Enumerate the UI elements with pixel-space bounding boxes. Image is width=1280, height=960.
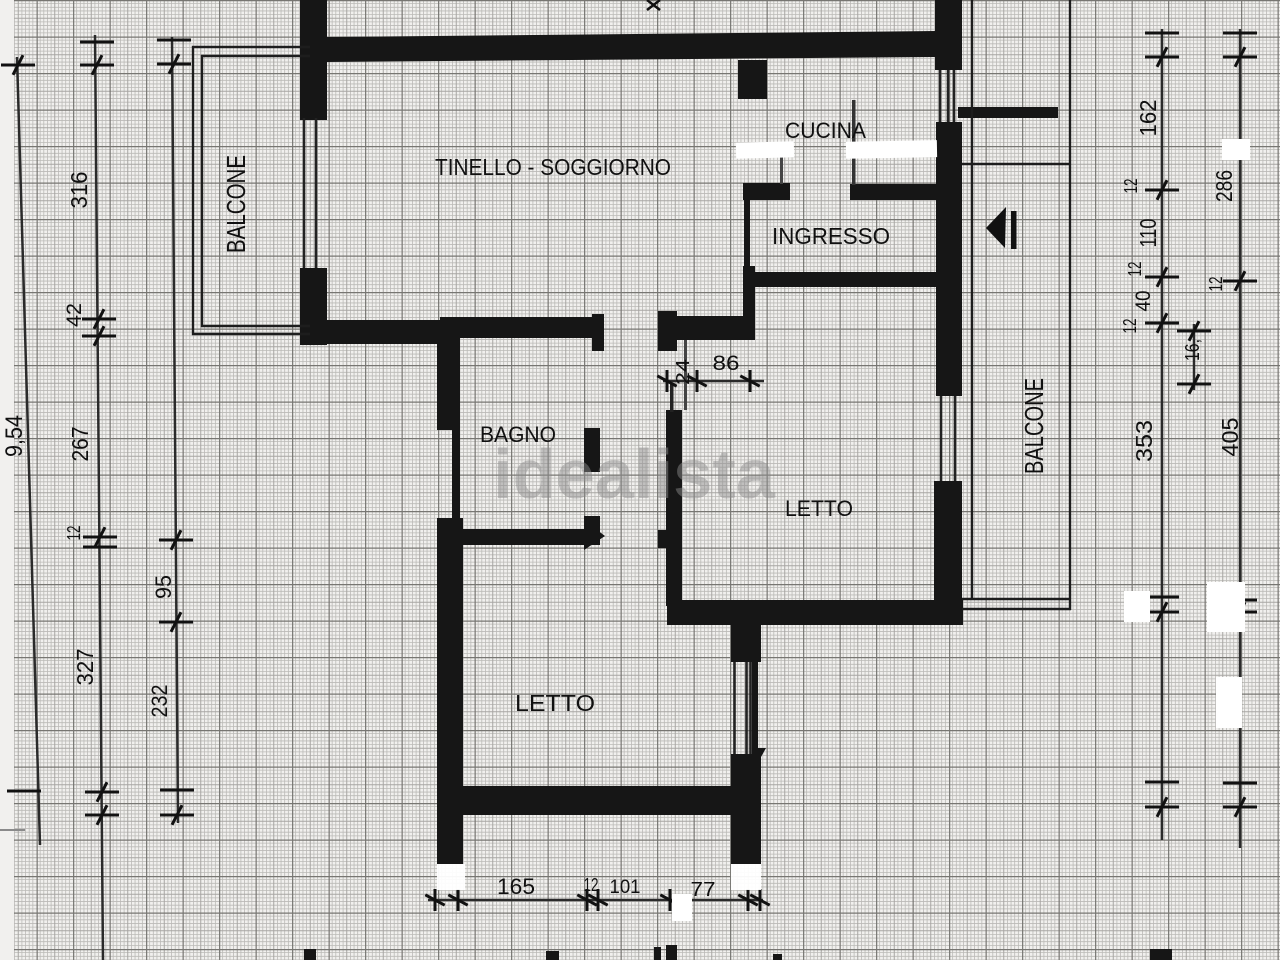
svg-text:110: 110	[1135, 219, 1161, 248]
svg-text:316: 316	[66, 172, 92, 209]
svg-text:12: 12	[584, 875, 599, 895]
svg-text:BAGNO: BAGNO	[480, 422, 556, 447]
svg-text:77: 77	[691, 879, 716, 901]
svg-text:12: 12	[1125, 262, 1145, 277]
svg-text:12: 12	[1120, 319, 1140, 334]
svg-text:405: 405	[1217, 418, 1243, 457]
svg-text:9,54: 9,54	[1, 415, 28, 457]
svg-text:LETTO: LETTO	[785, 496, 853, 521]
svg-text:12: 12	[1121, 179, 1141, 194]
svg-text:42: 42	[63, 303, 86, 327]
svg-text:24: 24	[673, 359, 693, 385]
svg-text:40: 40	[1132, 291, 1155, 312]
svg-text:16,: 16,	[1182, 339, 1204, 361]
svg-text:267: 267	[67, 427, 93, 462]
svg-text:BALCONE: BALCONE	[1019, 378, 1049, 474]
svg-text:12: 12	[64, 526, 84, 541]
svg-text:232: 232	[147, 685, 172, 718]
svg-text:95: 95	[151, 575, 176, 599]
svg-text:CUCINA: CUCINA	[785, 118, 866, 143]
svg-text:165: 165	[497, 874, 535, 899]
svg-text:INGRESSO: INGRESSO	[772, 223, 890, 249]
svg-text:353: 353	[1131, 420, 1157, 462]
svg-text:BALCONE: BALCONE	[221, 155, 251, 253]
svg-text:286: 286	[1211, 170, 1237, 202]
svg-text:327: 327	[72, 649, 98, 686]
svg-text:162: 162	[1135, 100, 1161, 137]
svg-text:LETTO: LETTO	[515, 690, 595, 716]
svg-text:101: 101	[610, 877, 641, 898]
svg-text:86: 86	[713, 352, 740, 375]
svg-text:TINELLO - SOGGIORNO: TINELLO - SOGGIORNO	[435, 154, 671, 180]
svg-text:12: 12	[1206, 277, 1226, 292]
